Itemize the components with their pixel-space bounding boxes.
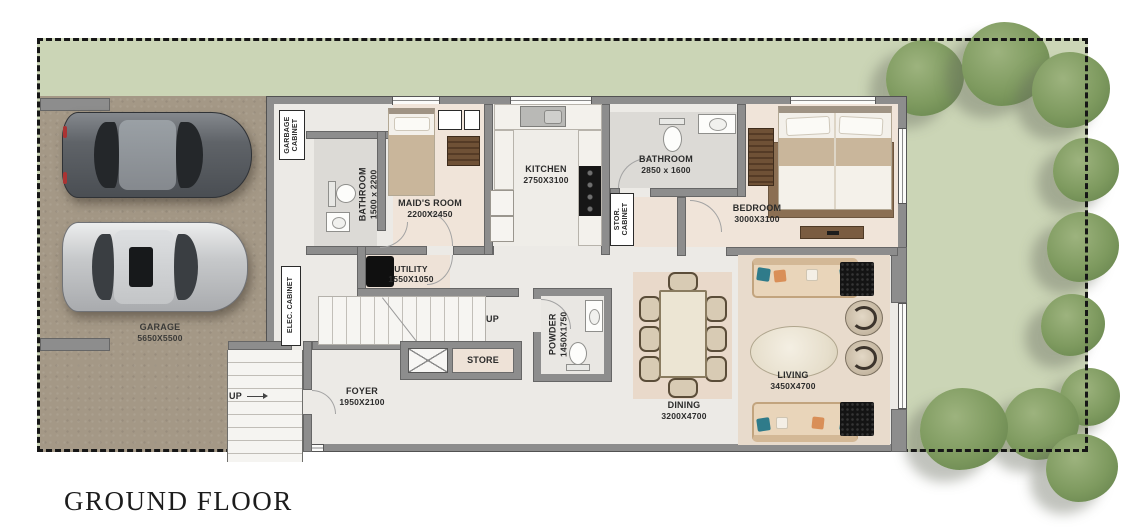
room-name: BEDROOM [712,203,802,214]
room-name: BATHROOM [358,149,369,239]
room-dims: 1500 x 2200 [368,149,378,239]
room-dims: 3000X3100 [712,214,802,224]
cabinet-label-line: CABINET [622,194,630,244]
wall [306,246,427,255]
dining-label: DINING 3200X4700 [639,400,729,421]
pillow-white [806,269,818,281]
living-label: LIVING 3450X4700 [748,370,838,391]
sink-basin [332,217,346,229]
stairs-up-label: UP [486,314,499,325]
pillow-orange [773,269,786,282]
up-arrow-head [263,393,268,399]
sink-icon [698,114,736,134]
chair-icon [668,378,698,398]
powder-door-gap [533,299,541,332]
wall [677,197,686,256]
window [898,128,907,204]
pillow [394,117,430,131]
wall-pier [891,409,907,452]
sink-basin [589,309,600,325]
wall [737,104,746,197]
entry-steps-icon [227,350,303,462]
stor-cabinet-label: STOR. CABINET [614,194,630,244]
wall [601,104,610,255]
bedroom-label: BEDROOM 3000X3100 [712,203,802,224]
maids-room-label: MAID'S ROOM 2200X2450 [385,198,475,219]
pillow-teal [756,267,771,282]
up-arrow [247,396,263,397]
dining-table-icon [659,290,707,378]
chair-icon [705,326,727,352]
foyer-label: FOYER 1950X2100 [317,386,407,407]
kitchen-sink-icon [520,106,566,127]
maids-bathroom-label: BATHROOM 1500 x 2200 [358,149,379,239]
wardrobe-icon [748,128,774,186]
store-label: STORE [452,355,514,366]
room-dims: 2750X3100 [501,175,591,185]
bed-icon [388,108,435,196]
side-table-icon [840,262,874,296]
chair-icon [705,356,727,382]
bathroom-label: BATHROOM 2850 x 1600 [621,154,711,175]
entry-up-label: UP [229,391,242,402]
room-dims: 3200X4700 [639,411,729,421]
elec-cabinet-label: ELEC. CABINET [287,267,295,343]
toilet-bowl [663,126,682,152]
bed-icon [778,106,892,210]
room-dims: 1550X1050 [366,274,456,284]
fridge-icon [490,190,514,242]
console-icon [800,226,864,239]
wall [303,414,312,452]
room-dims: 3450X4700 [748,381,838,391]
chair-icon [705,296,727,322]
pillow [786,116,831,136]
accent-chair-icon [845,340,883,376]
toilet-bowl [569,342,587,365]
sink-basin [709,118,727,131]
room-name: DINING [639,400,729,411]
shaft-icon [408,348,448,373]
pillow [839,116,884,136]
pillow-orange [811,416,824,429]
room-name: KITCHEN [501,164,591,175]
cabinet-label-line: STOR. [614,194,622,244]
chair-icon [639,326,661,352]
powder-label: POWDER 1450X1750 [548,289,569,379]
chair-icon [668,272,698,292]
room-dims: 2850 x 1600 [621,165,711,175]
sink-icon [326,212,350,232]
room-name: UTILITY [366,264,456,274]
stor-closet-floor [634,197,677,247]
room-name: MAID'S ROOM [385,198,475,209]
room-name: POWDER [548,289,559,379]
stairs-icon [318,296,486,345]
sink-basin [544,110,562,124]
cabinet-label-line: CABINET [292,108,300,162]
room-dims: 1950X2100 [317,397,407,407]
console-decor [827,231,839,235]
page-title: GROUND FLOOR [64,486,293,517]
room-name: LIVING [748,370,838,381]
room-dims: 2200X2450 [385,209,475,219]
kitchen-label: KITCHEN 2750X3100 [501,164,591,185]
utility-label: UTILITY 1550X1050 [366,264,456,284]
accent-chair-icon [845,300,883,336]
wardrobe-icon [447,136,480,166]
window [898,303,907,409]
pillow-white [776,417,788,429]
room-name: BATHROOM [621,154,711,165]
wall [650,188,746,197]
floor-plan: GARAGE 5650X5500 [0,0,1148,531]
chair-icon [639,296,661,322]
toilet-tank [659,118,685,125]
sink-icon [585,300,603,332]
room-name: FOYER [317,386,407,397]
pillow-teal [756,417,771,432]
toilet-tank [566,364,590,371]
cabinet-icon [464,110,480,130]
garbage-cabinet-label: GARBAGE CABINET [284,108,300,162]
toilet-tank [328,181,336,207]
wall [303,341,312,390]
side-table-icon [840,402,874,436]
chair-icon [639,356,661,382]
cabinet-icon [438,110,462,130]
cabinet-label-line: GARBAGE [284,108,292,162]
toilet-bowl [336,184,356,203]
room-dims: 1450X1750 [558,289,568,379]
